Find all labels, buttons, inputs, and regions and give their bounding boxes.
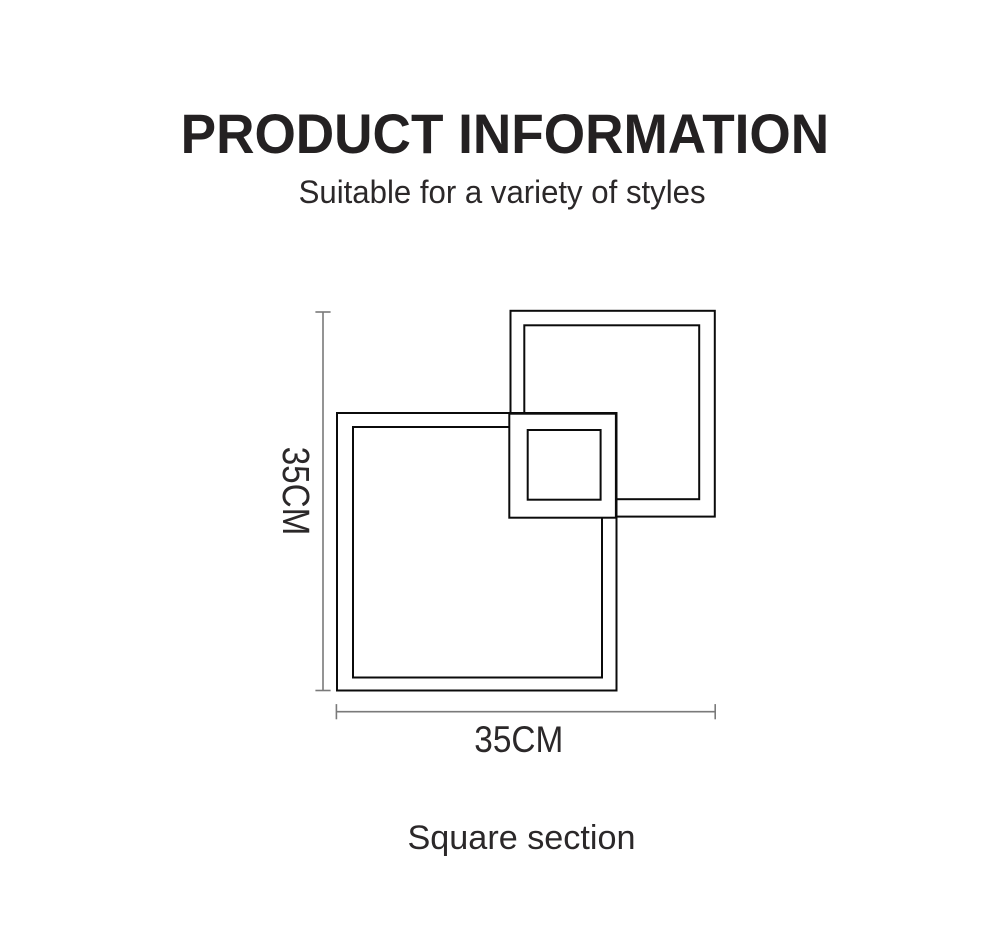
svg-text:PRODUCT INFORMATION: PRODUCT INFORMATION bbox=[181, 102, 830, 165]
svg-text:35CM: 35CM bbox=[474, 718, 563, 760]
svg-text:Square section: Square section bbox=[408, 819, 636, 857]
svg-text:Suitable for a variety of styl: Suitable for a variety of styles bbox=[299, 174, 706, 210]
svg-text:35CM: 35CM bbox=[274, 447, 316, 536]
